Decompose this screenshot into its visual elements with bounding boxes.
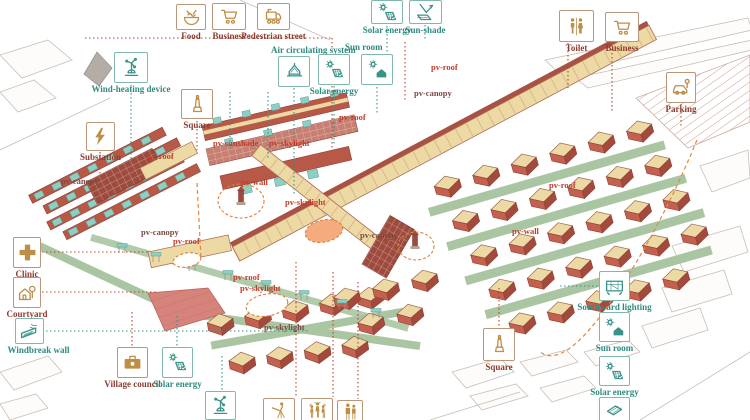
windbreak-wall-icon (15, 318, 44, 344)
pv-annotation: pv-wall (512, 226, 539, 236)
callout-sun-room-right: Sun room (599, 312, 630, 353)
pv-annotation: pv-roof (431, 62, 458, 72)
callout-label: Sun-shade (405, 26, 445, 35)
sun-panel-icon (162, 347, 193, 378)
monument-tower-icon (181, 89, 213, 119)
callout-sun-shade: Sun-shade (409, 0, 442, 35)
pv-annotation: pv-roof (147, 151, 174, 161)
food-bowl-icon (176, 4, 206, 30)
pv-annotation: pv-roof (339, 112, 366, 122)
hanging-canopy-icon (278, 56, 310, 87)
callout-village-council: Village council (117, 347, 148, 389)
callout-people-bottom (301, 398, 333, 420)
callout-label: Windbreak wall (8, 346, 70, 355)
sun-shade-icon (409, 0, 442, 24)
callout-teal-bottom-right (599, 397, 630, 420)
callout-parking: Parking (666, 72, 696, 114)
callout-label: Sun room (596, 344, 634, 353)
pv-annotation: pv-canopy (360, 230, 398, 240)
callout-label: Substation (80, 153, 121, 162)
callout-label: Solar energy (153, 380, 202, 389)
car-icon (666, 72, 696, 103)
callout-air-circulating-system: Air circulating system (278, 56, 310, 87)
briefcase-icon (117, 347, 148, 378)
callout-pedestrian-street: Pedestrian street (257, 3, 290, 41)
house-tree-icon (13, 277, 41, 308)
callout-business-top-right: Business (605, 12, 639, 53)
mid-houses (332, 267, 447, 342)
pv-annotation: pv-canopy (61, 176, 99, 186)
callout-label: Parking (666, 105, 697, 114)
callout-courtyard: Courtyard (13, 277, 41, 319)
callout-sun-room-center: Sun room (361, 54, 393, 85)
callout-solar-energy-center: Solar energy (318, 54, 350, 96)
sun-house-icon (599, 312, 630, 342)
pv-annotation: pv-skylight (269, 138, 310, 148)
callout-solar-energy-bottom-left: Solar energy (162, 347, 193, 389)
trolley-icon (257, 3, 290, 30)
callout-solar-energy-right: Solar energy (599, 356, 630, 397)
callout-label: Wind-heating device (91, 85, 170, 94)
callout-label: Business (605, 44, 638, 53)
pv-annotation: pv-skylight (240, 283, 281, 293)
pv-annotation: pv-roof (549, 180, 576, 190)
callout-label: Square (485, 363, 512, 372)
callout-southward-lighting: Southward lighting (599, 271, 630, 312)
window-icon (599, 271, 630, 301)
pv-annotation: pv-roof (173, 236, 200, 246)
pv-annotation: pv-roof (233, 272, 260, 282)
pv-annotation: pv-skylight (285, 197, 326, 207)
windmill-icon (114, 52, 148, 83)
callout-family-bottom (337, 400, 363, 420)
callout-windbreak-wall: Windbreak wall (15, 318, 44, 355)
pv-annotation: pv-skylight (264, 322, 305, 332)
people-group-icon (301, 398, 333, 420)
callout-clinic: Clinic (13, 237, 41, 279)
callout-label: Square (183, 121, 210, 130)
sun-panel-icon (599, 356, 630, 386)
masterplan-diagram: Food Business Pedestrian street Toilet B… (0, 0, 750, 420)
residential-block (421, 110, 723, 350)
windmill-icon (205, 391, 236, 420)
restroom-icon (559, 10, 594, 42)
shopping-cart-icon (212, 3, 246, 30)
callout-substation: Substation (86, 122, 115, 162)
callout-label: Pedestrian street (241, 32, 306, 41)
person-telescope-icon (263, 398, 295, 420)
callout-square-top: Square (181, 89, 213, 130)
lightning-bolt-icon (86, 122, 115, 151)
sun-panel-icon (371, 0, 403, 24)
sun-house-icon (361, 54, 393, 85)
pv-annotation: pv-canopy (414, 88, 452, 98)
callout-toilet: Toilet (559, 10, 594, 53)
medical-cross-icon (13, 237, 41, 268)
callout-square-bottom: Square (483, 328, 515, 372)
people-pair-icon (337, 400, 363, 420)
callout-label: Solar energy (310, 87, 359, 96)
callout-solar-energy-top: Solar energy (371, 0, 403, 35)
callout-label: Food (181, 32, 201, 41)
callout-label: Solar energy (363, 26, 412, 35)
monument-tower-icon (483, 328, 515, 361)
callout-wind-heating-device: Wind-heating device (114, 52, 148, 94)
pv-annotation: pv-sunshade (213, 138, 258, 148)
callout-label: Sun room (345, 43, 383, 52)
callout-food: Food (176, 4, 206, 41)
sun-panel-icon (318, 54, 350, 85)
callout-label: Toilet (566, 44, 588, 53)
shopping-cart-icon (605, 12, 639, 42)
callout-telescope-bottom (263, 398, 295, 420)
callout-wind-device-bottom (205, 391, 236, 420)
pv-annotation: pv-wall (241, 177, 268, 187)
panel-lines-icon (599, 397, 630, 420)
